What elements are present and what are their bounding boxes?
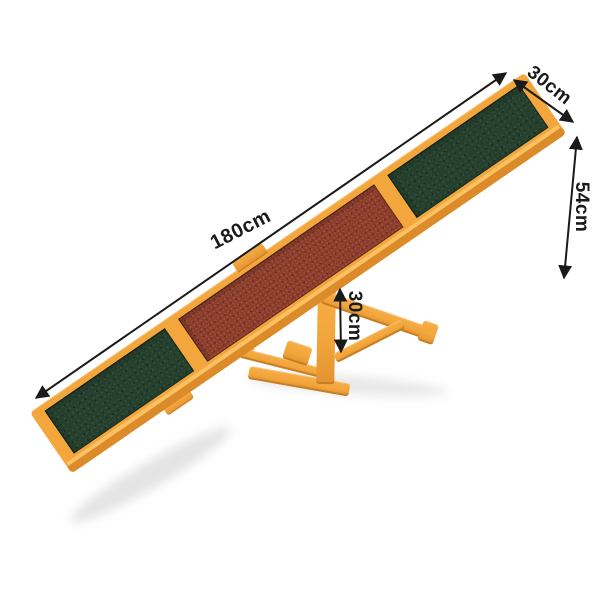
end-height-dimension-label: 54cm bbox=[570, 182, 592, 233]
pivot-height-dimension-arrow bbox=[340, 289, 341, 352]
length-dimension-arrow bbox=[36, 73, 506, 398]
dimension-arrows bbox=[0, 0, 600, 600]
product-image: 180cm 30cm 54cm 30cm bbox=[0, 0, 600, 600]
pivot-height-dimension-label: 30cm bbox=[343, 291, 365, 342]
